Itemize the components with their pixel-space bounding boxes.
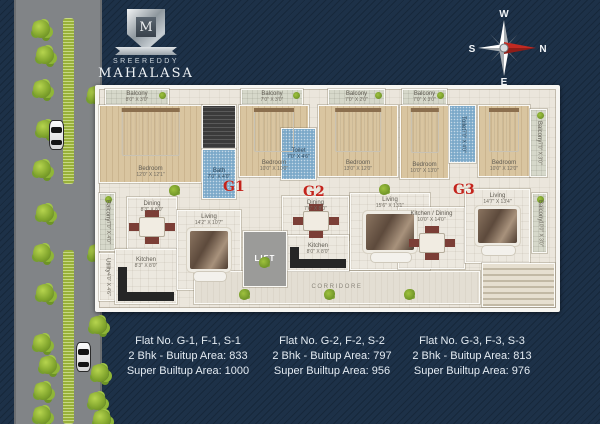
room-label: Balcony [535,121,542,142]
room-dims: 14'2" X 10'7" [195,221,223,227]
room-stairs [482,263,555,307]
builtup-area: 2 Bhk - Buitup Area: 813 [388,349,556,364]
rug-icon [190,231,228,268]
plant-icon [169,185,180,196]
compass-west-label: W [499,9,509,20]
room-g2-bedroom: Bedroom13'0" X 12'0" [318,105,398,177]
room-g2-balcony-top: Balcony7'0" X 2'0" [328,89,385,105]
car-icon [76,342,91,372]
room-g3-kitchen-dining: Kitchen / Dining10'0" X 14'0" [398,207,465,269]
tree-icon [33,406,51,424]
road-median-strip [63,250,74,424]
room-g3-bedroom-1: Bedroom10'0" X 13'0" [400,105,449,179]
room-g1-utility: Utility4'0" X 4'6" [99,253,115,301]
unit-label-g2: G2 [303,184,325,200]
room-g3-balcony-top: Balcony7'0" X 3'0" [402,89,447,105]
room-label: CORRIDORE [311,284,362,291]
tree-icon [39,356,57,374]
tree-icon [36,284,54,302]
room-dims: 7'0" X 4'6" [287,155,310,161]
room-dims: 8'0" X 3'0" [126,98,149,104]
bed-icon [410,108,438,153]
car-icon [49,120,64,150]
room-dims: 7'0" X 3'0" [413,98,436,104]
tree-icon [34,382,52,400]
table-icon [419,233,445,253]
logo-monogram: M [136,17,156,37]
unit-label-g1: G1 [223,179,245,195]
tree-icon [36,204,54,222]
room-g1-balcony-top-2: Balcony7'0" X 3'0" [241,89,303,105]
tree-icon [33,80,51,98]
bed-icon [121,108,180,156]
brochure-page: M SREEREDDY MAHALASA W E S N Balcony8'0"… [0,0,600,424]
room-dims: 12'0" X 12'1" [136,173,164,179]
room-dims: 10'0" X 3'0" [537,221,543,246]
room-dims: 7'0" X 4'0" [104,221,110,244]
room-dims: 7'0" X 2'0" [345,98,368,104]
room-dims: 8'3" X 8'0" [135,264,158,270]
bed-icon [335,108,381,152]
room-g1-bedroom-1: Bedroom12'0" X 12'1" [99,105,202,183]
room-g3-balcony-right-bottom: Balcony10'0" X 3'0" [532,193,547,253]
room-dims: 10'0" X 13'0" [410,169,438,175]
tree-icon [33,334,51,352]
bed-icon [489,108,519,152]
room-dims: 8'0" X 8'0" [307,250,330,256]
room-dims: 10'0" X 12'0" [490,167,518,173]
room-dims: 7'0" X 3'0" [536,142,542,165]
room-dims: 14'7" X 13'4" [483,200,511,206]
room-label: Utility [104,258,111,273]
rug-icon [478,209,517,244]
room-g1-balcony-top-1: Balcony8'0" X 3'0" [105,89,169,105]
room-g1-wardrobe [202,105,236,149]
room-g3-bedroom-2: Bedroom10'0" X 12'0" [478,105,530,177]
room-g2-kitchen: Kitchen8'0" X 8'0" [287,235,349,271]
room-dims: 10'0" X 10'0" [260,167,288,173]
tree-icon [93,410,111,424]
room-dims: 7'0" X 4'0" [460,130,466,153]
table-icon [303,211,329,231]
brand-top-text: SREEREDDY [98,58,194,65]
shield-icon: M [127,9,165,51]
room-dims: 8'3" X 8'0" [141,208,164,214]
tree-icon [32,20,50,38]
room-dims: 7'0" X 3'0" [261,98,284,104]
room-label: Balcony [104,200,111,221]
room-g3-balcony-right-top: Balcony7'0" X 3'0" [530,109,547,177]
super-builtup-area: Super Builtup Area: 976 [388,364,556,379]
room-g1-kitchen: Kitchen8'3" X 8'0" [115,249,177,304]
tree-icon [89,316,107,334]
builder-logo: M SREEREDDY MAHALASA [98,9,194,81]
tree-icon [33,160,51,178]
tree-icon [88,392,106,410]
room-g3-living: Living14'7" X 13'4" [465,189,530,263]
room-g1-sitout: Balcony7'0" X 4'0" [99,193,115,251]
flat-info-g3: Flat No. G-3, F-3, S-3 2 Bhk - Buitup Ar… [388,334,556,379]
room-label: Toilet [459,116,466,130]
tree-icon [33,244,51,262]
road-median-strip [63,18,74,184]
room-label: Balcony [536,200,543,221]
room-g3-toilet: Toilet7'0" X 4'0" [449,105,476,163]
room-dims: 13'0" X 12'0" [344,167,372,173]
room-dims: 10'0" X 14'0" [417,218,445,224]
compass-east-label: E [501,77,508,86]
floor-plan: Balcony8'0" X 3'0"Bedroom12'0" X 12'1"Ba… [95,85,560,312]
ribbon-icon [115,47,177,55]
room-corridor: CORRIDORE [194,271,480,304]
flat-number: Flat No. G-3, F-3, S-3 [388,334,556,349]
table-icon [139,217,165,237]
room-dims: 15'6" X 13'1" [376,204,404,210]
tree-icon [36,46,54,64]
compass-south-label: S [469,44,476,55]
unit-label-g3: G3 [453,182,475,198]
room-g2-dining: Dining7'6" X 8'0" [282,196,349,240]
compass-north-label: N [539,44,546,55]
room-dims: 7'6" X 8'0" [304,207,327,213]
room-dims: 4'0" X 4'6" [104,273,110,296]
brand-name-text: MAHALASA [98,66,194,81]
compass-icon: W E S N [458,8,550,86]
room-g1-dining: Dining8'3" X 8'0" [127,197,177,249]
